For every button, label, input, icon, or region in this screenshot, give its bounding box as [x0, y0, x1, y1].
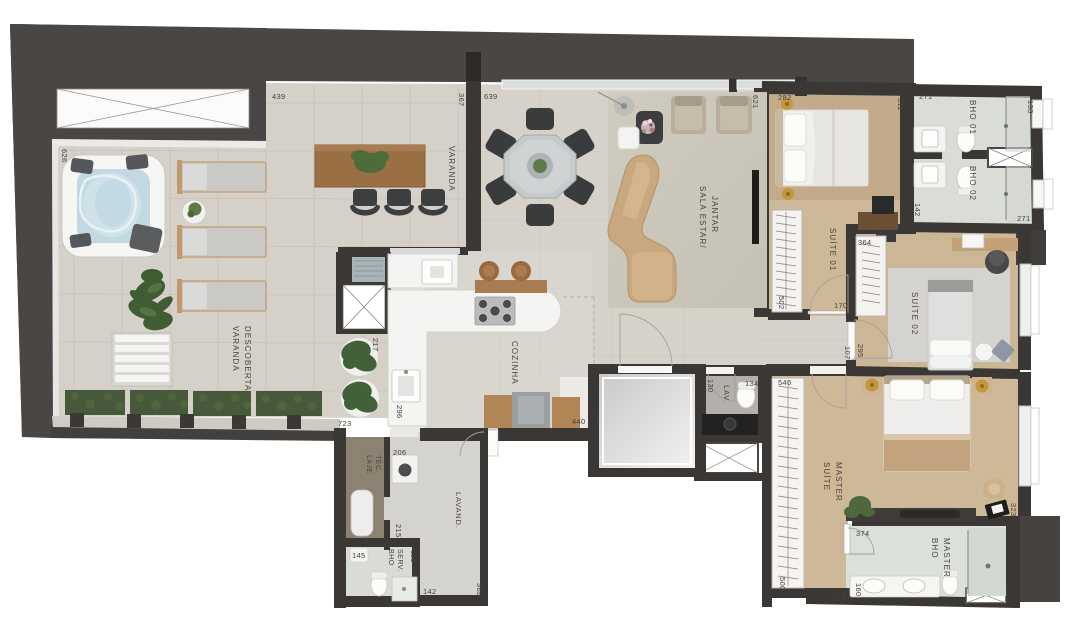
svg-text:142: 142	[913, 203, 922, 216]
svg-text:367: 367	[457, 93, 466, 106]
svg-text:626: 626	[60, 149, 69, 162]
svg-text:364: 364	[858, 238, 871, 247]
svg-text:LAJE: LAJE	[365, 455, 372, 474]
svg-text:621: 621	[751, 95, 760, 108]
svg-text:639: 639	[484, 92, 497, 101]
svg-text:JANTAR: JANTAR	[710, 196, 719, 233]
svg-text:LAVAND.: LAVAND.	[454, 492, 463, 529]
svg-text:SUÍTE 01: SUÍTE 01	[828, 228, 837, 271]
svg-text:MASTER: MASTER	[942, 538, 951, 578]
svg-text:133: 133	[1026, 100, 1035, 113]
svg-text:296: 296	[395, 405, 404, 418]
svg-text:282: 282	[778, 93, 791, 102]
svg-text:107: 107	[843, 346, 852, 359]
svg-text:295: 295	[856, 344, 865, 357]
svg-text:BHO: BHO	[930, 538, 939, 559]
svg-text:COZINHA: COZINHA	[510, 341, 519, 385]
svg-text:440: 440	[572, 417, 585, 426]
svg-text:SALA ESTAR/: SALA ESTAR/	[698, 186, 707, 249]
svg-text:SERV.: SERV.	[396, 549, 403, 572]
svg-text:158: 158	[832, 591, 845, 600]
svg-text:206: 206	[393, 448, 406, 457]
svg-text:130: 130	[706, 379, 715, 392]
svg-text:723: 723	[338, 419, 351, 428]
svg-text:BHO 02: BHO 02	[968, 166, 977, 201]
svg-text:145: 145	[352, 551, 365, 560]
svg-text:LAV.: LAV.	[722, 385, 731, 403]
svg-text:374: 374	[856, 529, 869, 538]
svg-text:VARANDA: VARANDA	[447, 146, 456, 192]
svg-text:134: 134	[745, 379, 758, 388]
svg-text:BHO 01: BHO 01	[968, 100, 977, 135]
svg-text:SUÍTE: SUÍTE	[822, 462, 831, 491]
svg-text:368: 368	[475, 583, 484, 596]
svg-text:115: 115	[409, 550, 418, 563]
svg-text:323: 323	[1009, 503, 1018, 516]
svg-text:TÉC.: TÉC.	[374, 455, 383, 473]
svg-text:142: 142	[423, 587, 436, 596]
svg-text:271: 271	[1017, 214, 1030, 223]
svg-text:MASTER: MASTER	[834, 462, 843, 502]
svg-text:BHO: BHO	[387, 549, 394, 566]
svg-text:160: 160	[854, 583, 863, 596]
svg-text:271: 271	[919, 92, 932, 101]
svg-text:VARANDA: VARANDA	[231, 326, 240, 372]
svg-text:SUÍTE 02: SUÍTE 02	[910, 292, 919, 335]
svg-text:217: 217	[371, 338, 380, 351]
svg-text:500: 500	[778, 577, 787, 590]
svg-text:502: 502	[777, 296, 786, 309]
svg-text:439: 439	[272, 92, 285, 101]
svg-text:DESCOBERTA: DESCOBERTA	[243, 326, 252, 391]
svg-text:170: 170	[834, 301, 847, 310]
svg-text:546: 546	[778, 378, 791, 387]
svg-text:311: 311	[896, 98, 905, 111]
svg-text:215: 215	[394, 524, 403, 537]
